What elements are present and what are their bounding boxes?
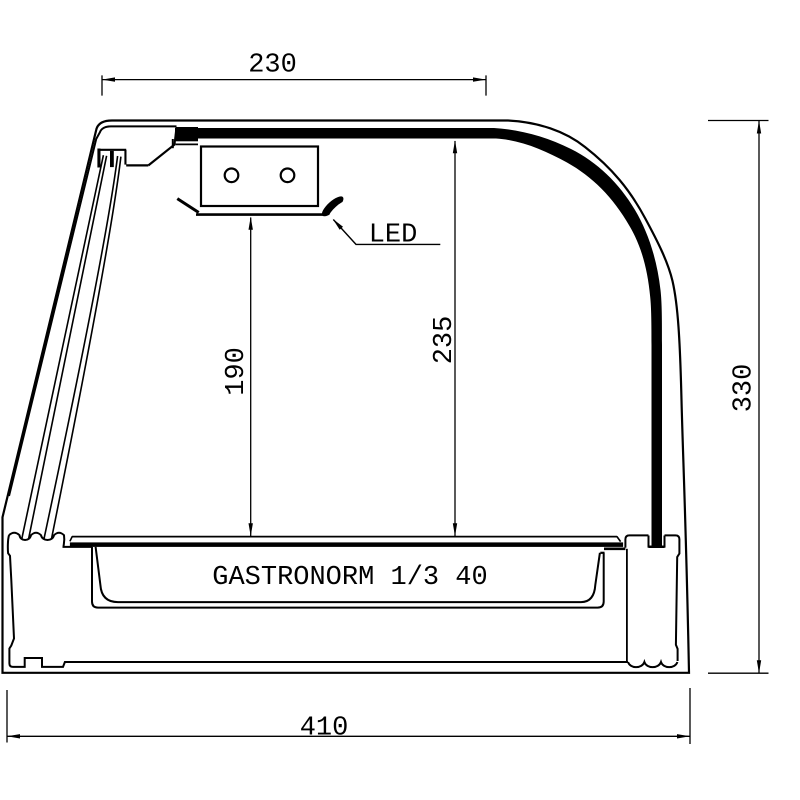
svg-text:190: 190 [222, 347, 252, 396]
svg-text:410: 410 [300, 714, 349, 744]
svg-text:235: 235 [430, 316, 460, 365]
svg-text:GASTRONORM 1/3 40: GASTRONORM 1/3 40 [212, 563, 487, 593]
svg-text:LED: LED [369, 220, 418, 250]
svg-text:330: 330 [729, 364, 759, 413]
svg-text:230: 230 [248, 50, 297, 80]
